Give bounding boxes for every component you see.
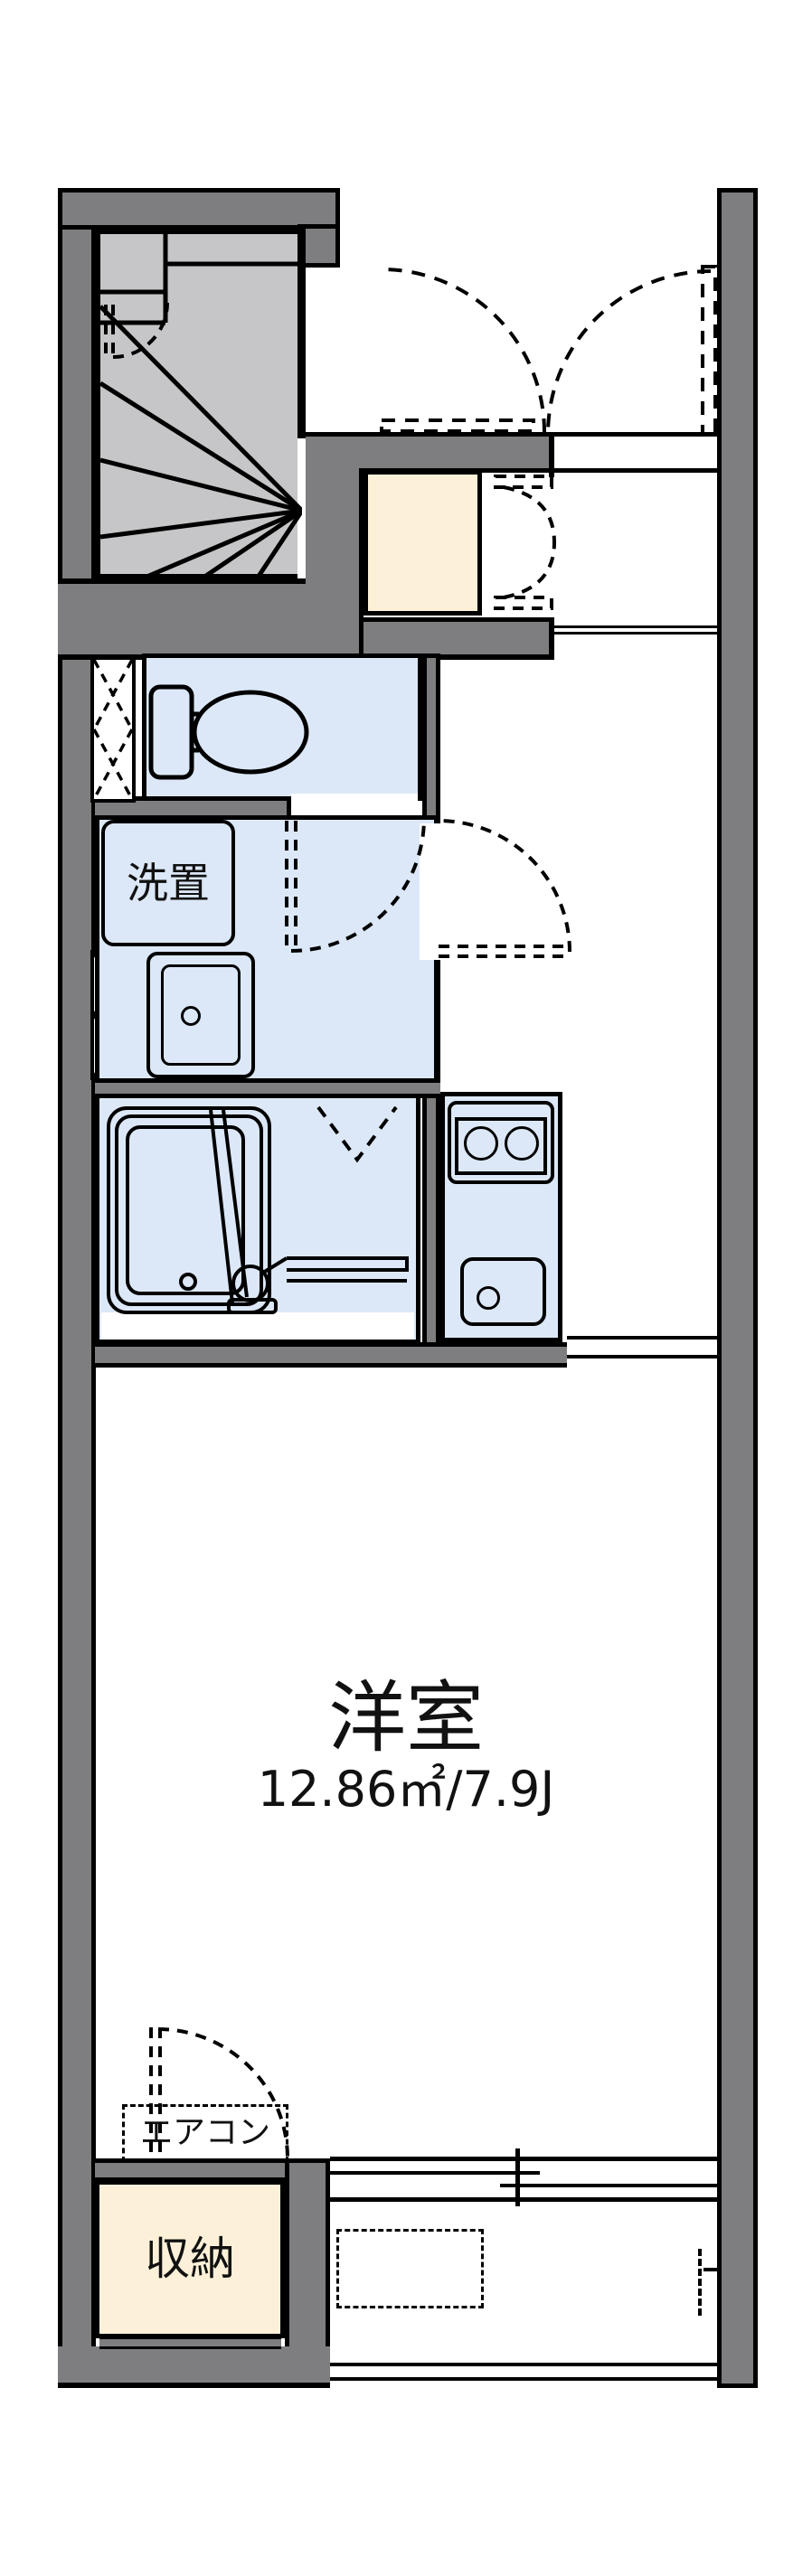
storage-closet: 収納 xyxy=(95,2180,285,2338)
balcony-window-rail-2 xyxy=(330,2171,540,2175)
balcony-window-tick xyxy=(515,2148,520,2206)
bathtub-icon xyxy=(95,1094,420,1344)
burner-right-icon xyxy=(505,1126,539,1161)
storage-door-swing-icon xyxy=(145,2023,294,2162)
wall-bottom-left xyxy=(58,2346,330,2388)
storage-step xyxy=(99,2336,281,2349)
kitchen-drain-icon xyxy=(477,1286,500,1310)
staircase-icon xyxy=(100,234,302,583)
wall-below-stairs xyxy=(58,578,306,660)
wall-closet-left xyxy=(306,468,364,660)
balcony-pipe-icon xyxy=(698,2249,703,2316)
entrance-door-swing-icon xyxy=(306,190,717,438)
balcony-window-rail-3 xyxy=(500,2184,717,2187)
toilet-room xyxy=(142,653,422,801)
shoe-closet-bifold-door-icon xyxy=(488,470,561,615)
wall-left xyxy=(58,188,96,2388)
storage-label: 収納 xyxy=(145,2235,235,2283)
balcony-washer-space xyxy=(336,2229,484,2308)
toilet-door-swing-icon xyxy=(280,813,434,963)
wall-right xyxy=(717,188,758,2388)
toilet-icon xyxy=(146,658,418,796)
vanity-drain-icon xyxy=(181,1006,201,1026)
vanity-sink xyxy=(146,952,255,1078)
burner-left-icon xyxy=(464,1126,498,1161)
main-room-label: 洋室 xyxy=(270,1678,542,1759)
main-room-opening xyxy=(567,1336,717,1359)
floor-plan: 洗置 洋室 12.86㎡/7. xyxy=(0,0,812,2576)
stair-room xyxy=(96,230,297,578)
shoe-closet xyxy=(364,470,482,616)
balcony-rail xyxy=(330,2363,717,2381)
wall-room-north xyxy=(95,1342,567,1368)
kitchen-sink xyxy=(460,1257,546,1326)
hall-threshold xyxy=(554,625,717,635)
balcony-window-rail-4 xyxy=(330,2197,717,2202)
balcony-pipe-tick xyxy=(703,2268,717,2271)
genkan-floor xyxy=(554,437,717,473)
laundry-space-label: 洗置 xyxy=(127,861,210,905)
wall-genkan xyxy=(306,437,553,473)
bath-folding-door-icon xyxy=(318,1107,396,1160)
washroom-door-swing-icon xyxy=(434,818,579,967)
vanity-bowl xyxy=(161,964,241,1066)
main-room-size-label: 12.86㎡/7.9J xyxy=(225,1764,587,1816)
wall-hall-upper xyxy=(422,653,440,825)
kitchen-unit xyxy=(440,1092,562,1342)
laundry-space-box: 洗置 xyxy=(101,820,235,946)
window-toilet xyxy=(90,656,136,803)
balcony-window-rail-1 xyxy=(330,2157,717,2161)
